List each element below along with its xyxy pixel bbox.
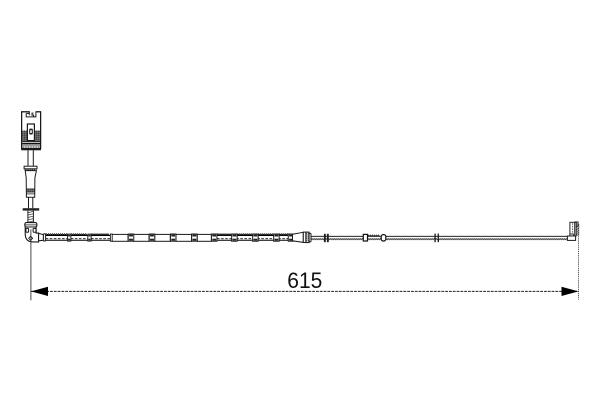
svg-text:615: 615 (287, 268, 322, 293)
